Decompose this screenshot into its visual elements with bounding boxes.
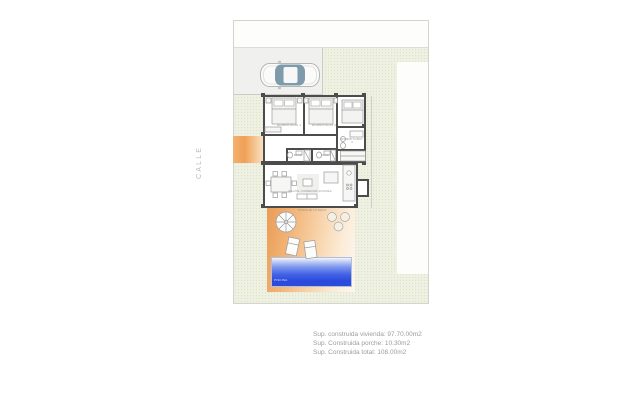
- pool-label: PISCINA: [274, 279, 298, 282]
- bed-2: [304, 98, 338, 124]
- side-path: [397, 62, 428, 274]
- legend-line-porche: Sup. Construida porche: 10.30m2: [313, 339, 463, 348]
- pouf-stools: [328, 213, 350, 232]
- bedroom1-label: DORMITORIO 1: [276, 124, 302, 127]
- street-access-strip: [233, 136, 266, 163]
- dining-table: [266, 172, 297, 198]
- bedroom2-label: DORMITORIO 2: [311, 124, 337, 127]
- legend-line-total: Sup. Construida total: 108.00m2: [313, 348, 463, 357]
- area-legend: Sup. construida vivienda: 97.70.00m2 Sup…: [313, 330, 463, 357]
- legend-line-vivienda: Sup. construida vivienda: 97.70.00m2: [313, 330, 463, 339]
- bedroom3-label: DORMITORIO 3: [340, 138, 364, 145]
- sofa-rug: [297, 174, 319, 199]
- bath1-label: BAÑO: [287, 154, 309, 157]
- parasol-table: [276, 212, 296, 232]
- kitchen-counter: [324, 165, 355, 201]
- street-label: CALLE: [196, 139, 203, 179]
- car-top-view-icon: [259, 60, 321, 90]
- porch-label: PORCHE 10.30m2: [296, 209, 328, 212]
- bed-3: [342, 100, 363, 123]
- sun-loungers: [285, 237, 317, 259]
- site-plan-page: DORMITORIO 1 DORMITORIO 2 DORMITORIO 3 B…: [0, 0, 631, 404]
- bath2-label: BAÑO: [315, 154, 335, 157]
- living-label: SALÓN-COMEDOR-COCINA: [288, 190, 332, 193]
